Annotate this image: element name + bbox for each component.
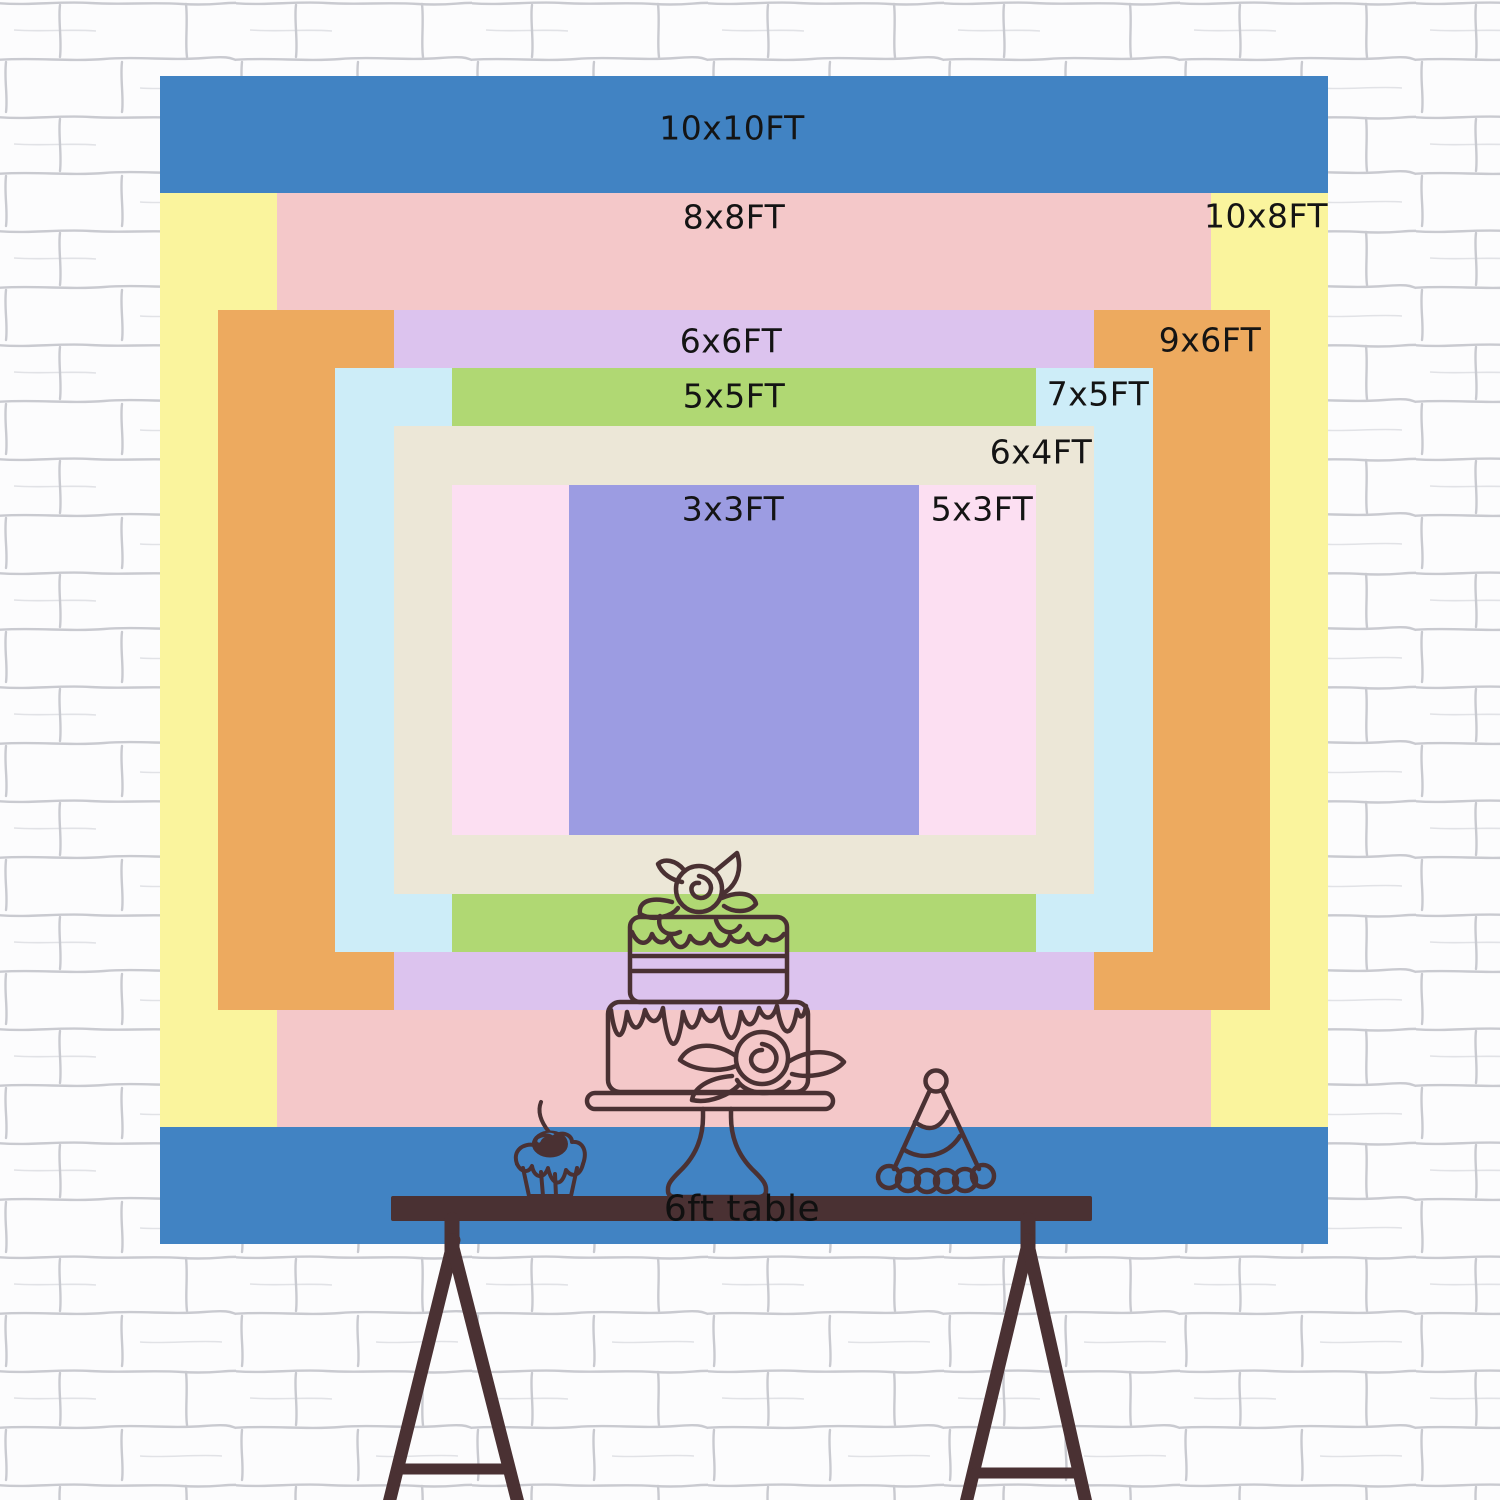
- cake-drawing: [587, 853, 844, 1197]
- table-size-label: 6ft table: [664, 1189, 820, 1230]
- cupcake-drawing: [516, 1102, 585, 1196]
- scene-line-art: [0, 0, 1500, 1500]
- party-hat-drawing: [878, 1071, 994, 1193]
- backdrop-size-chart: 10x10FT10x8FT8x8FT9x6FT6x6FT7x5FT5x5FT6x…: [0, 0, 1500, 1500]
- table-drawing: [389, 1196, 1092, 1500]
